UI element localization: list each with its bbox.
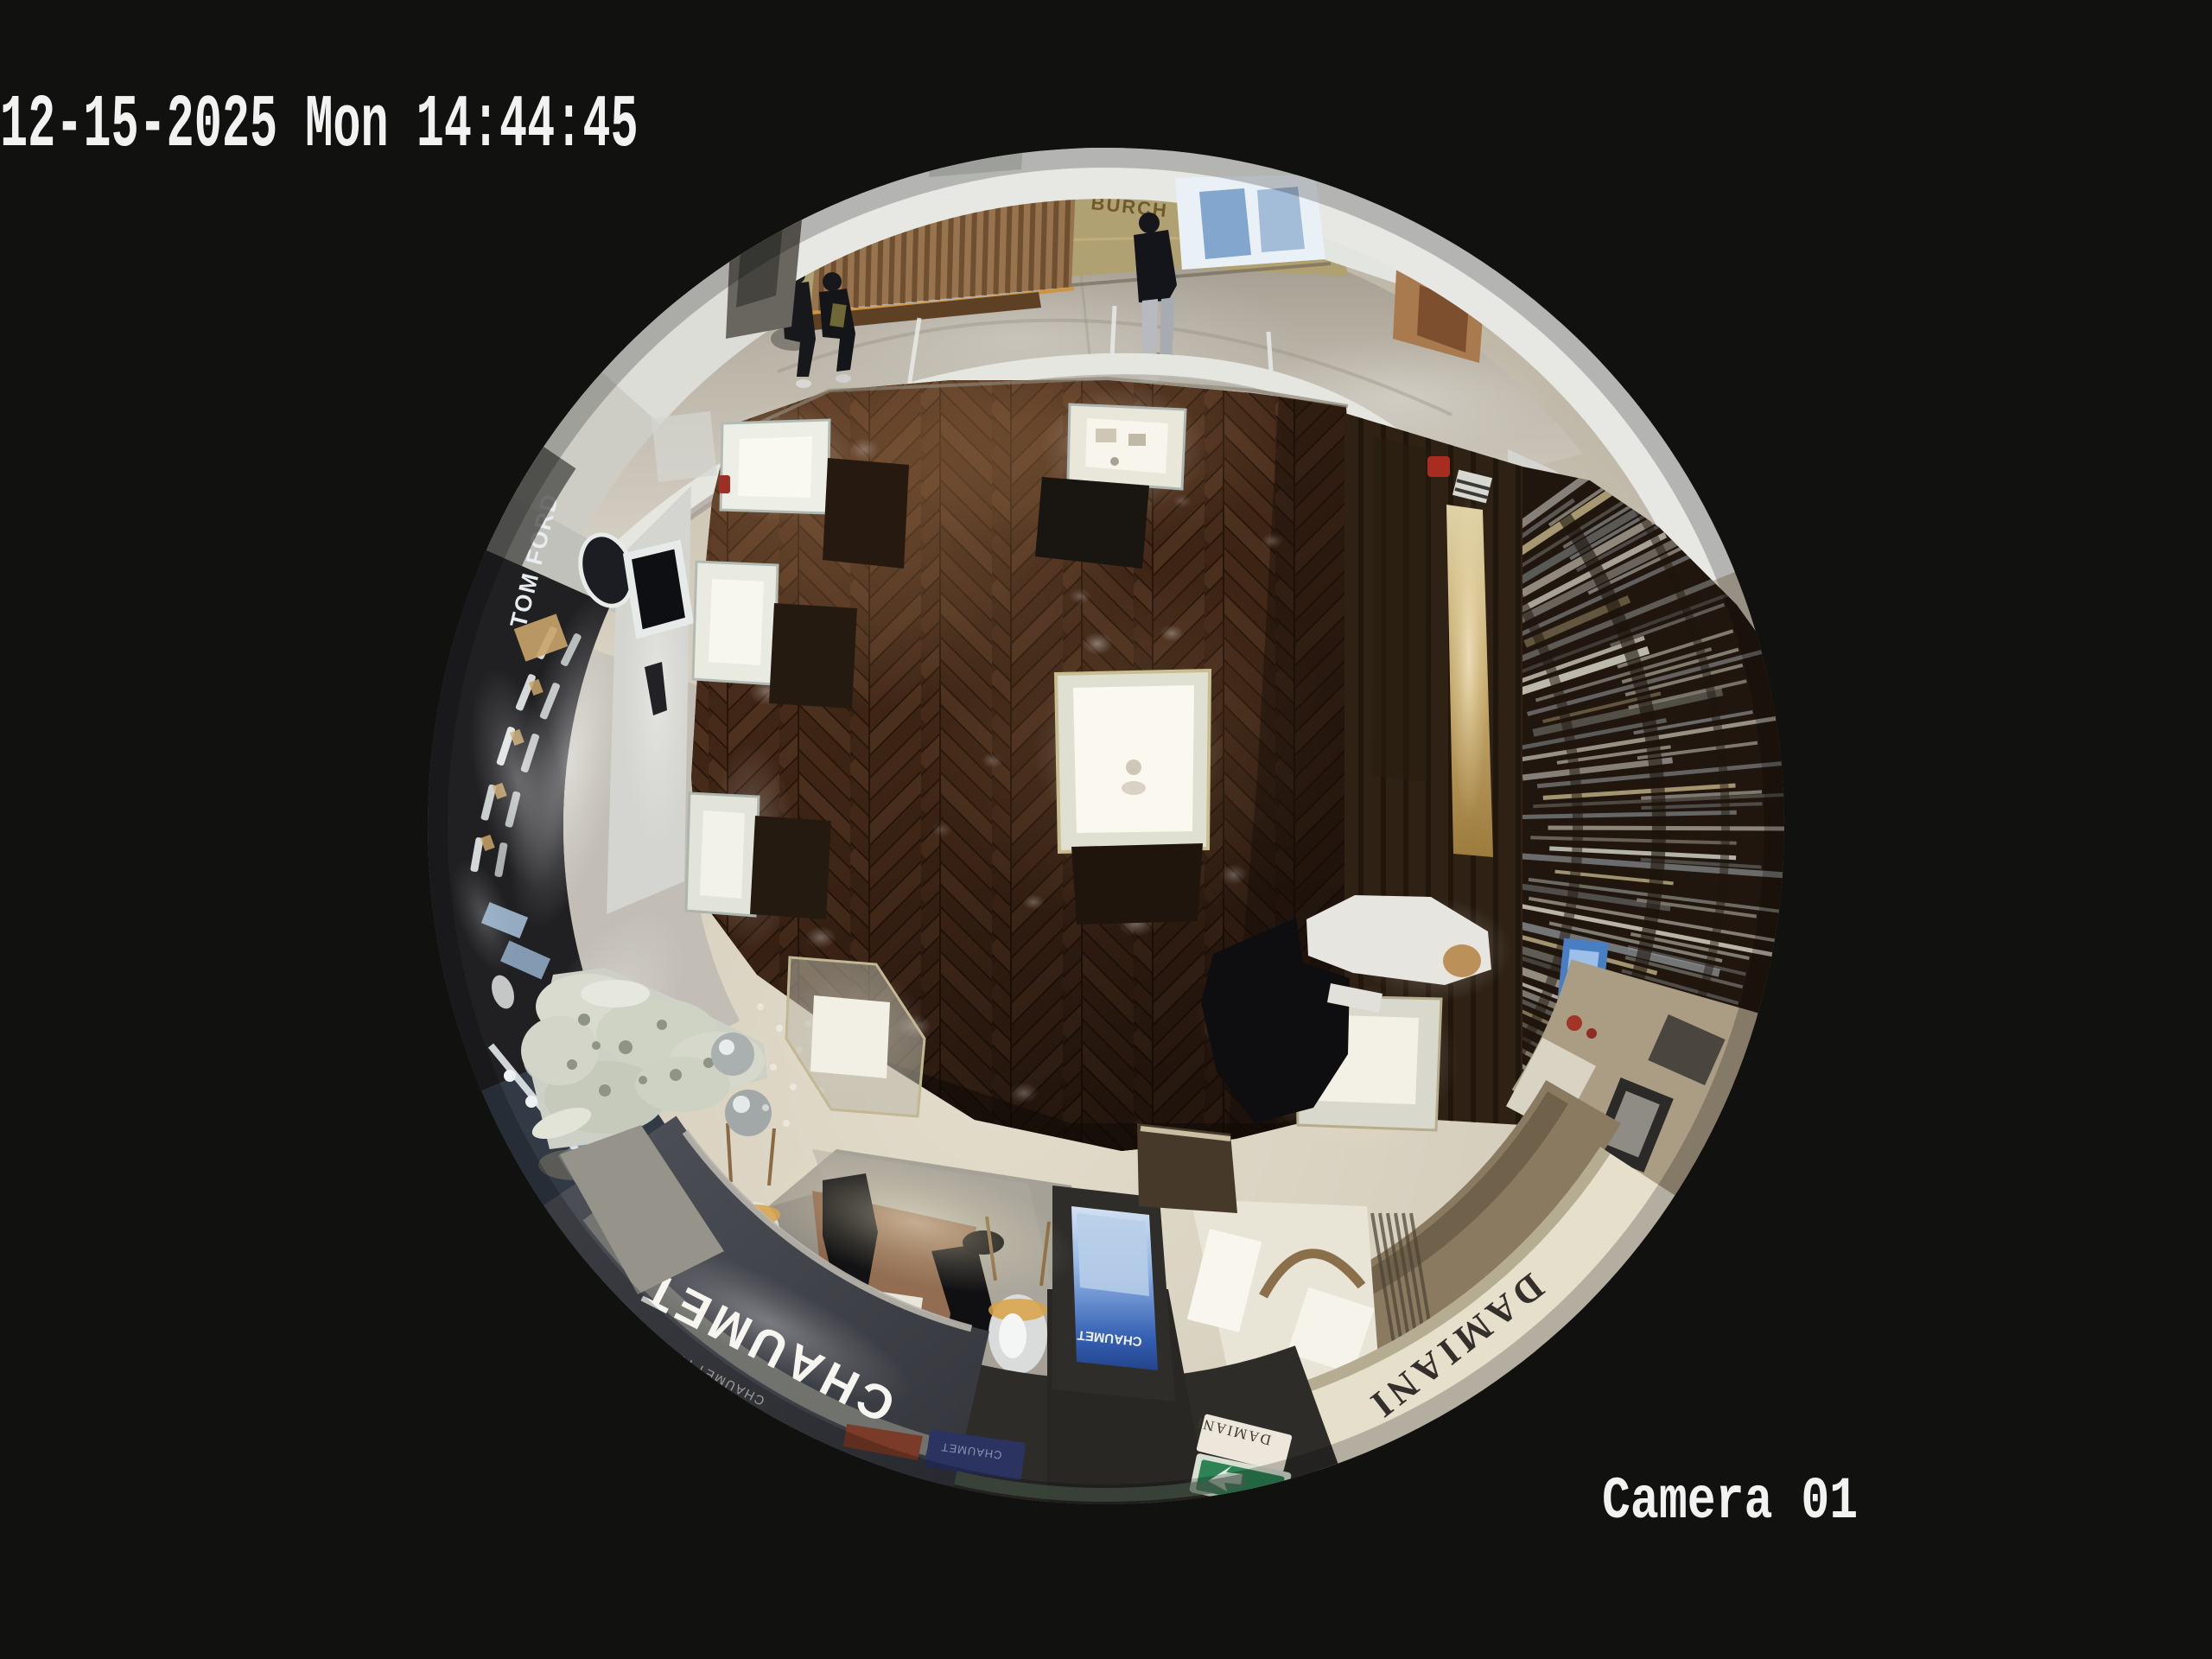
svg-text:Camera 01: Camera 01 [1602,1467,1858,1535]
svg-text:12-15-2025 Mon 14:44:45: 12-15-2025 Mon 14:44:45 [0,83,639,168]
